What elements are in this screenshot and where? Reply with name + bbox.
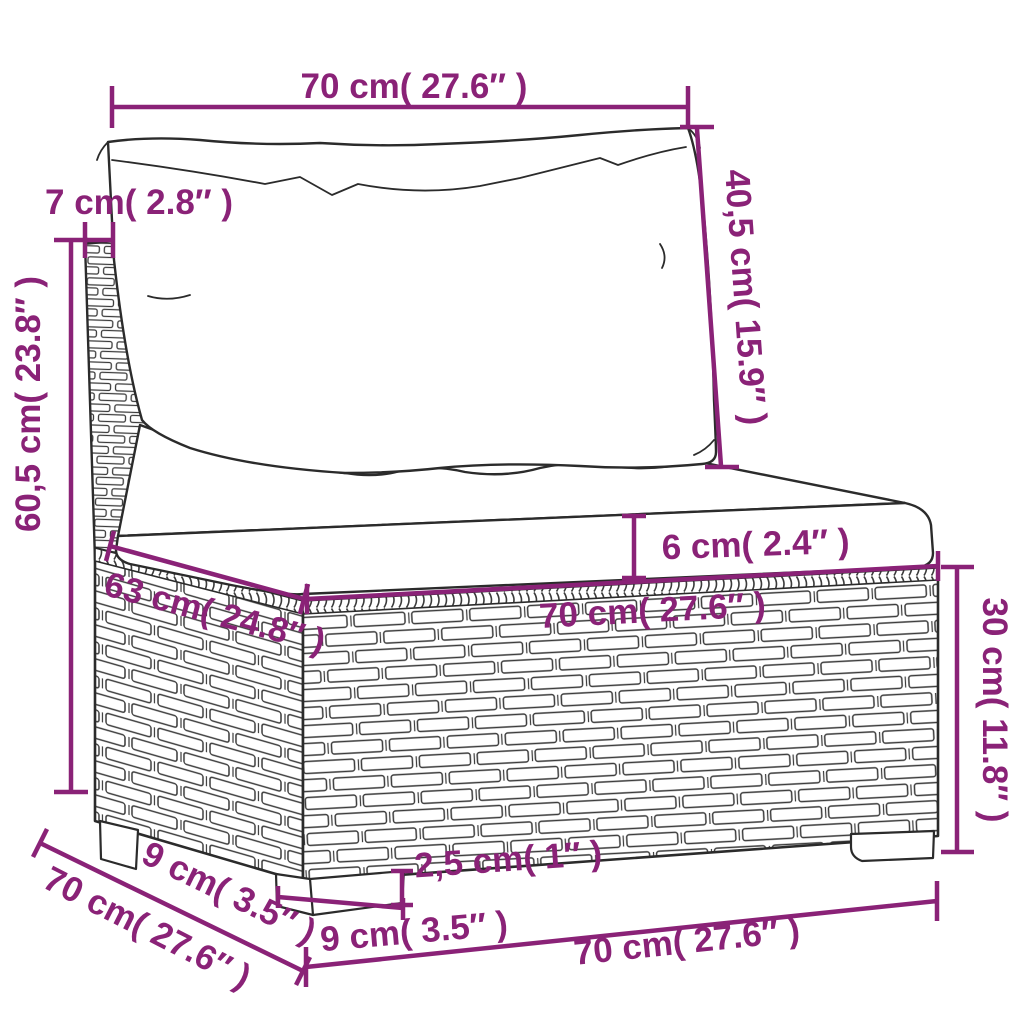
sofa-illustration xyxy=(85,128,938,915)
sofa-dimension-diagram: 70 cm( 27.6″ ) 7 cm( 2.8″ ) 40,5 cm( 15.… xyxy=(0,0,1024,1024)
dim-base-height: 30 cm( 11.8″ ) xyxy=(941,567,1014,852)
dim-overall-height-label: 60,5 cm( 23.8″ ) xyxy=(9,276,48,532)
dim-top-width: 70 cm( 27.6″ ) xyxy=(112,67,688,128)
dim-top-width-label: 70 cm( 27.6″ ) xyxy=(301,67,528,106)
back-cushion xyxy=(97,128,716,473)
back-cushion-body xyxy=(108,128,716,473)
dim-post-depth-label: 7 cm( 2.8″ ) xyxy=(45,183,233,222)
dim-cushion-thickness-label: 6 cm( 2.4″ ) xyxy=(661,522,850,568)
dim-base-height-label: 30 cm( 11.8″ ) xyxy=(975,598,1014,823)
leg-front-right xyxy=(851,831,934,861)
leg-back-left xyxy=(100,821,138,869)
dim-base-front-width-label: 70 cm( 27.6″ ) xyxy=(572,910,802,973)
dim-overall-height: 60,5 cm( 23.8″ ) xyxy=(9,240,88,792)
dim-backrest-height-label: 40,5 cm( 15.9″ ) xyxy=(717,168,774,426)
dimension-diagram-page: 70 cm( 27.6″ ) 7 cm( 2.8″ ) 40,5 cm( 15.… xyxy=(0,0,1024,1024)
